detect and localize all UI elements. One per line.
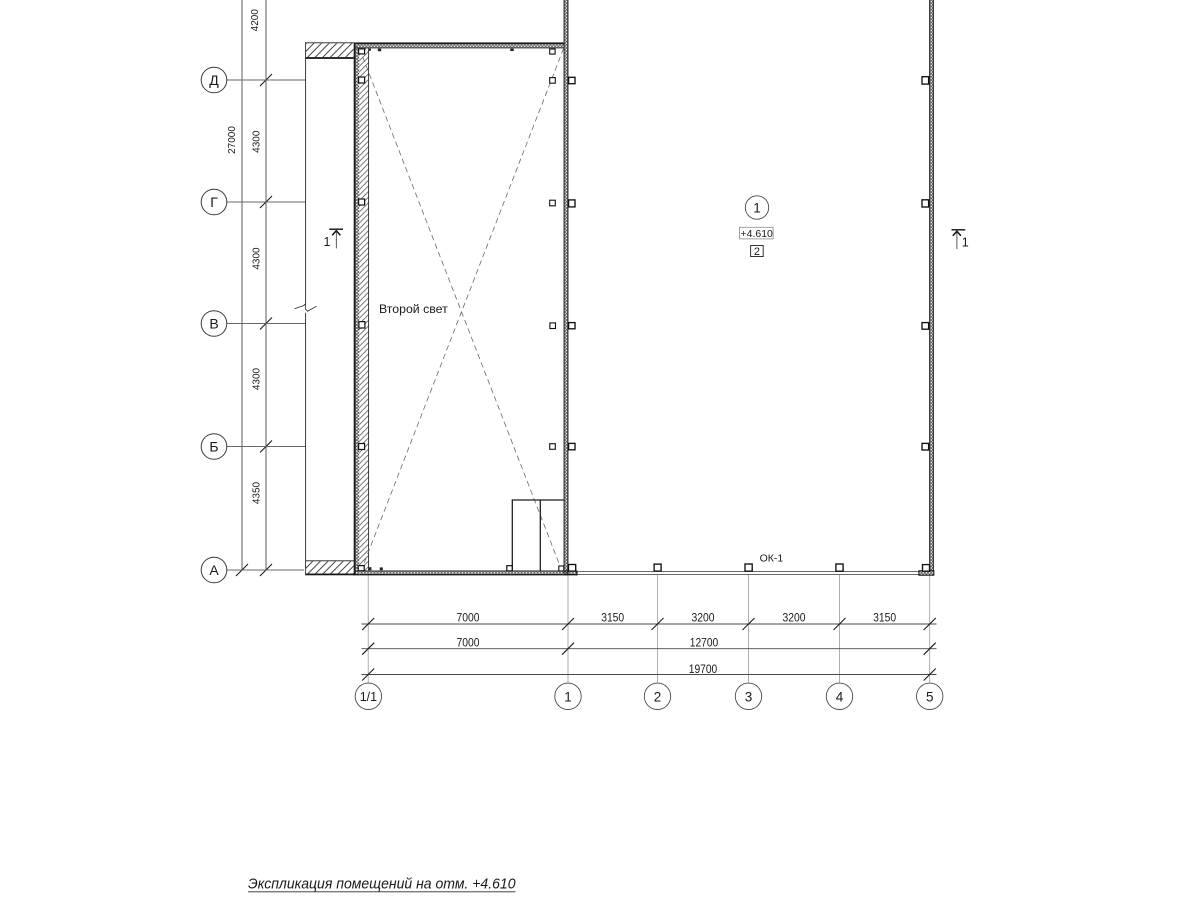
- svg-text:Д: Д: [209, 72, 219, 88]
- svg-text:7000: 7000: [457, 612, 480, 625]
- svg-text:4300: 4300: [251, 247, 262, 270]
- svg-text:19700: 19700: [689, 663, 718, 676]
- svg-text:12700: 12700: [690, 636, 719, 649]
- svg-text:3150: 3150: [601, 612, 624, 625]
- svg-text:3: 3: [745, 689, 753, 704]
- svg-text:1/1: 1/1: [360, 690, 377, 704]
- svg-text:7000: 7000: [457, 636, 480, 649]
- svg-text:5: 5: [926, 689, 934, 704]
- svg-text:4300: 4300: [251, 130, 262, 153]
- svg-text:3150: 3150: [873, 612, 896, 625]
- svg-text:4350: 4350: [251, 481, 262, 504]
- svg-text:ОК-1: ОК-1: [760, 553, 784, 565]
- svg-text:4: 4: [836, 689, 844, 704]
- svg-text:Б: Б: [209, 439, 218, 455]
- svg-text:В: В: [209, 316, 218, 332]
- svg-text:27000: 27000: [227, 126, 238, 154]
- svg-text:Второй свет: Второй свет: [379, 302, 448, 316]
- svg-text:3200: 3200: [692, 612, 715, 625]
- svg-text:3200: 3200: [783, 612, 806, 625]
- svg-text:2: 2: [754, 246, 760, 258]
- svg-text:Г: Г: [210, 194, 218, 210]
- svg-text:4200: 4200: [250, 9, 261, 32]
- svg-text:1: 1: [753, 201, 761, 216]
- svg-text:2: 2: [654, 689, 662, 704]
- svg-text:4300: 4300: [251, 367, 262, 390]
- svg-text:1: 1: [962, 236, 969, 250]
- svg-text:А: А: [209, 562, 219, 578]
- svg-text:1: 1: [324, 235, 331, 249]
- svg-text:Экспликация помещений на отм.: Экспликация помещений на отм. +4.610: [248, 877, 516, 893]
- svg-text:+4.610: +4.610: [740, 228, 773, 240]
- svg-text:1: 1: [564, 689, 572, 704]
